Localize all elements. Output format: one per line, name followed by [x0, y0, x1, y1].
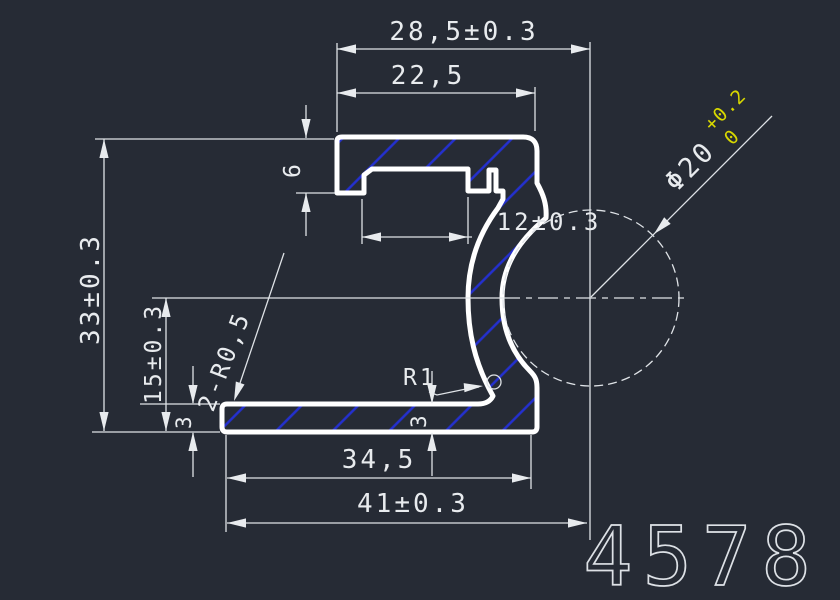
dim-label-base-width-overall: 41±0.3 — [357, 489, 469, 519]
dim-label-top-width-inner: 22,5 — [391, 61, 466, 91]
dim-label-channel-opening: 12±0.3 — [497, 208, 602, 236]
part-number: 4578 — [583, 510, 820, 600]
dim-label-base-thickness-right: 3 — [407, 412, 431, 428]
dim-label-top-width-outer: 28,5±0.3 — [389, 17, 538, 47]
dim-label-overall-height: 33±0.3 — [76, 233, 106, 345]
dim-label-flange-height: 6 — [280, 161, 306, 178]
dim-label-center-height: 15±0.3 — [141, 303, 167, 404]
drawing-viewport: 28,5±0.3 22,5 6 12±0.3 33±0.3 15±0.3 3 3… — [0, 0, 840, 600]
dim-label-base-thickness-left: 3 — [172, 413, 196, 429]
dim-label-base-width-inner: 34,5 — [342, 445, 417, 475]
callout-fillet-radius: R1 — [403, 365, 437, 391]
technical-drawing-canvas: 28,5±0.3 22,5 6 12±0.3 33±0.3 15±0.3 3 3… — [0, 0, 840, 600]
